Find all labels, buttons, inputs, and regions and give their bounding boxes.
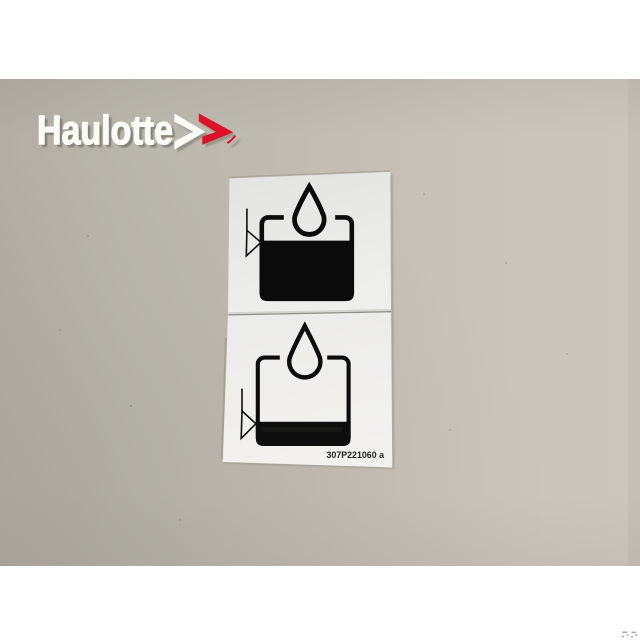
svg-text:Haulotte: Haulotte <box>37 107 173 153</box>
svg-text:307P221060 a: 307P221060 a <box>327 450 385 460</box>
